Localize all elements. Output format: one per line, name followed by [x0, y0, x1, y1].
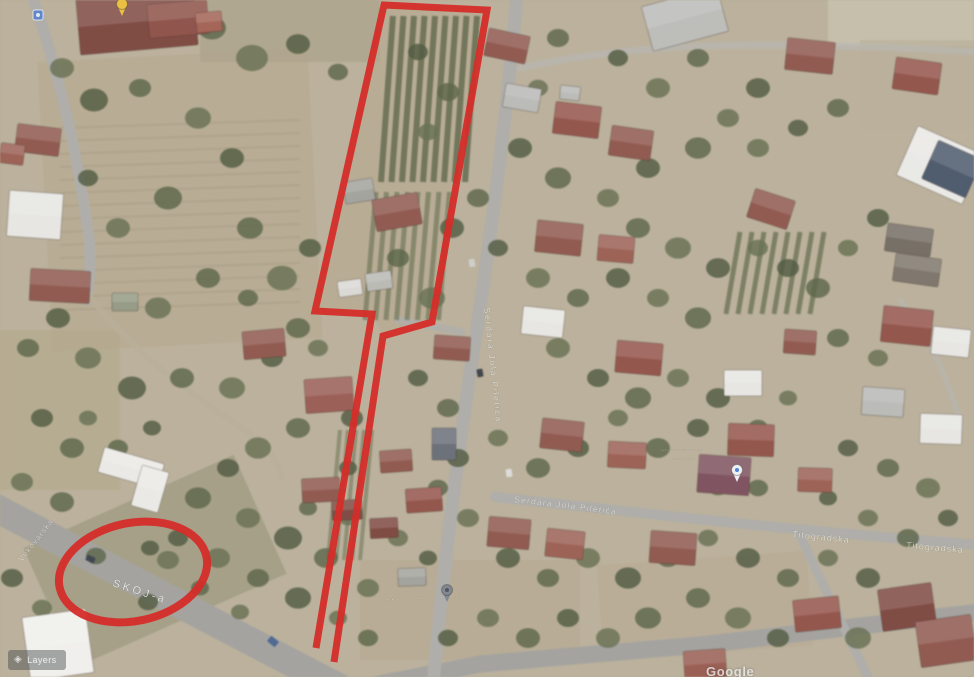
poi-label-line1: ········ ···· ····· — [660, 447, 704, 454]
layers-icon: ◈ — [14, 655, 22, 665]
street-label-bottom-road: ··· ······ ····· — [386, 591, 465, 604]
layers-button[interactable]: ◈ Layers — [8, 650, 66, 670]
layers-label: Layers — [27, 655, 56, 665]
street-label-cross-road: Serdara Jola Piletića — [514, 494, 618, 516]
map-viewport[interactable]: SKOJ-aVukovarskaSerdara Jola PiletićaSer… — [0, 0, 974, 677]
street-label-skoj-a: SKOJ-a — [111, 577, 168, 606]
blue-sign-icon[interactable] — [33, 10, 43, 20]
annotation-overlay: SKOJ-aVukovarskaSerdara Jola PiletićaSer… — [0, 0, 974, 677]
street-label-titogradska-1: Titogradska — [792, 529, 850, 545]
street-label-vukovarska: Vukovarska — [16, 517, 55, 563]
google-watermark: Google — [706, 664, 754, 677]
white-pin-icon[interactable] — [732, 465, 743, 483]
yellow-pin-icon[interactable] — [117, 0, 128, 16]
street-label-main-road: Serdara Jola Piletića — [482, 307, 504, 423]
street-highlight-ellipse-annotation — [49, 508, 216, 635]
poi-label-line2: ······ ··· — [672, 456, 695, 463]
parcel-outline-annotation — [315, 5, 487, 662]
street-label-titogradska-2: Titogradska — [906, 540, 964, 555]
